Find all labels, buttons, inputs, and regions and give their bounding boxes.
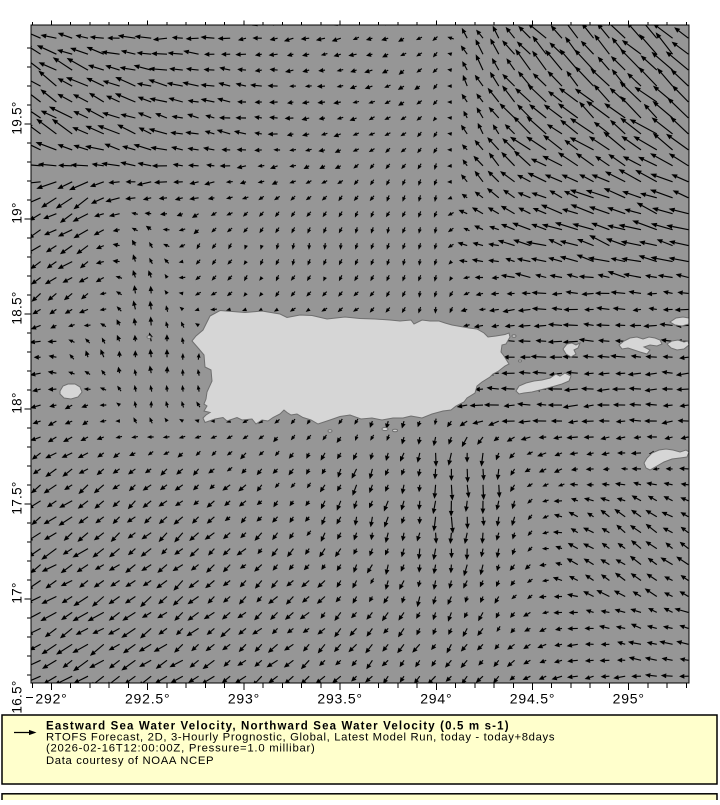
svg-text:18°: 18° — [10, 392, 25, 413]
svg-text:(2026-02-16T12:00:00Z, Pressur: (2026-02-16T12:00:00Z, Pressure=1.0 mill… — [46, 743, 316, 755]
svg-text:19°: 19° — [10, 202, 25, 223]
svg-text:292.5°: 292.5° — [125, 691, 170, 707]
svg-text:16.5°: 16.5° — [10, 680, 25, 713]
svg-text:292°: 292° — [35, 691, 67, 707]
svg-text:293.5°: 293.5° — [317, 691, 362, 707]
svg-text:294°: 294° — [420, 691, 452, 707]
svg-text:294.5°: 294.5° — [510, 691, 555, 707]
svg-text:17°: 17° — [10, 582, 25, 603]
svg-text:17.5°: 17.5° — [10, 481, 25, 514]
svg-text:Data courtesy of NOAA NCEP: Data courtesy of NOAA NCEP — [46, 755, 214, 767]
svg-text:295°: 295° — [613, 691, 645, 707]
svg-text:19.5°: 19.5° — [10, 101, 25, 134]
svg-text:293°: 293° — [228, 691, 260, 707]
svg-text:18.5°: 18.5° — [10, 291, 25, 324]
